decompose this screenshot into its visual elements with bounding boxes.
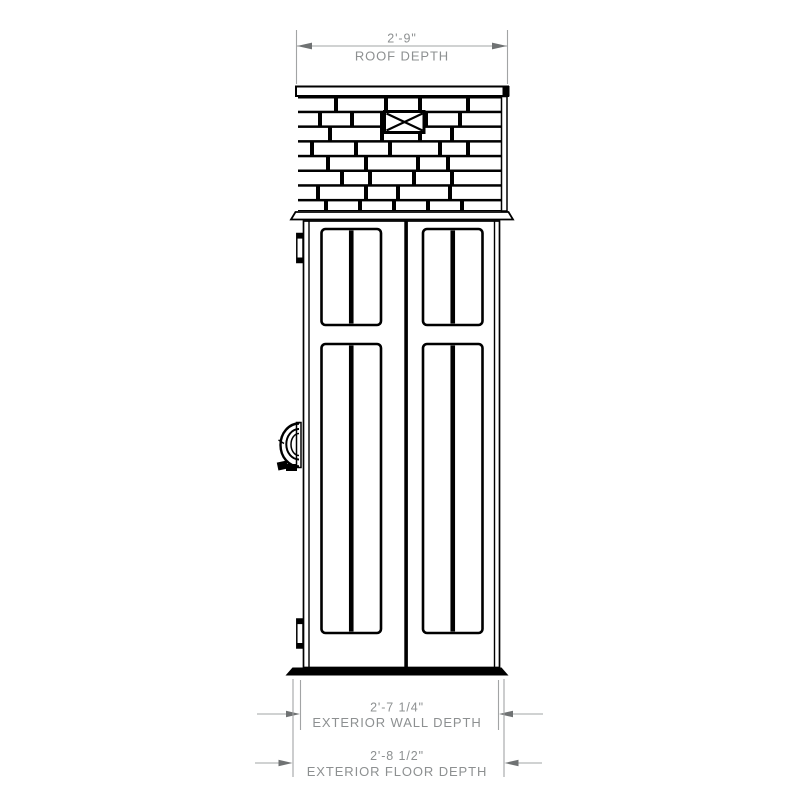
arrowhead-right xyxy=(499,711,513,718)
floor-slab xyxy=(286,668,509,676)
arrowhead-right xyxy=(492,43,507,50)
shingle xyxy=(298,201,324,210)
roof xyxy=(291,86,513,220)
wall-depth-label: EXTERIOR WALL DEPTH xyxy=(312,715,481,730)
shingle xyxy=(416,172,450,184)
roof-fascia-right xyxy=(502,97,508,212)
shingle xyxy=(298,128,328,140)
shingle xyxy=(422,99,466,111)
arrowhead-left xyxy=(297,43,312,50)
shingle xyxy=(298,187,316,199)
shingle xyxy=(344,172,368,184)
shingle xyxy=(332,128,380,140)
shingle xyxy=(420,157,446,169)
shingle xyxy=(450,157,502,169)
dimension-wall-depth: 2'-7 1/4" EXTERIOR WALL DEPTH xyxy=(257,680,543,730)
roof-depth-value: 2'-9" xyxy=(387,32,416,46)
door-panel-4 xyxy=(423,344,483,633)
shingle xyxy=(392,143,438,155)
arrowhead-right xyxy=(505,760,519,767)
body xyxy=(277,221,509,676)
elevation-drawing: 2'-9" ROOF DEPTH 2'-7 1/4" EXTERIOR WALL… xyxy=(0,0,800,800)
shingle xyxy=(388,99,418,111)
dimension-roof-depth: 2'-9" ROOF DEPTH xyxy=(297,30,508,84)
shingle xyxy=(358,143,388,155)
shingle xyxy=(368,187,396,199)
shingle xyxy=(464,201,502,210)
shingle xyxy=(372,172,412,184)
door-center-stile xyxy=(404,221,408,668)
door-handle xyxy=(277,423,301,472)
shingle xyxy=(362,201,392,210)
shingle xyxy=(330,157,364,169)
shingle xyxy=(298,99,334,111)
shingle xyxy=(422,128,450,140)
shingle xyxy=(400,187,448,199)
panel-center-bar xyxy=(349,346,354,632)
hinge-top xyxy=(297,234,303,263)
elevation-svg: 2'-9" ROOF DEPTH 2'-7 1/4" EXTERIOR WALL… xyxy=(0,0,800,800)
panel-center-bar xyxy=(450,346,455,632)
floor-depth-label: EXTERIOR FLOOR DEPTH xyxy=(307,764,488,779)
shingle xyxy=(338,99,384,111)
shingle xyxy=(328,201,358,210)
roof-depth-label: ROOF DEPTH xyxy=(355,49,449,64)
shingle xyxy=(298,113,318,125)
door-panel-3 xyxy=(322,344,382,633)
shingle xyxy=(368,157,416,169)
shingle xyxy=(396,201,426,210)
shingle xyxy=(354,113,380,125)
shingle xyxy=(470,99,502,111)
shingle xyxy=(462,113,502,125)
arrowhead-left xyxy=(279,760,293,767)
door-panel-1 xyxy=(322,229,382,325)
shingle xyxy=(314,143,354,155)
shingle xyxy=(452,187,502,199)
wall-depth-value: 2'-7 1/4" xyxy=(370,701,424,715)
shingle xyxy=(454,128,502,140)
shingle xyxy=(454,172,502,184)
shingle xyxy=(320,187,364,199)
floor-depth-value: 2'-8 1/2" xyxy=(370,749,424,763)
panel-center-bar xyxy=(450,231,455,324)
roof-cap xyxy=(296,87,508,97)
roof-cap-end xyxy=(503,86,510,97)
hinge-bottom xyxy=(297,619,303,648)
shingle xyxy=(298,172,340,184)
shingle xyxy=(298,143,310,155)
panel-center-bar xyxy=(349,231,354,324)
shingle xyxy=(428,113,458,125)
shingle xyxy=(470,143,502,155)
shingle xyxy=(322,113,350,125)
shingle xyxy=(430,201,460,210)
shingle xyxy=(442,143,466,155)
roof-drip-edge xyxy=(291,212,513,220)
marked-shingle xyxy=(385,112,425,133)
handle-latch-base xyxy=(286,464,297,471)
shingle xyxy=(298,157,326,169)
door-panel-2 xyxy=(423,229,483,325)
